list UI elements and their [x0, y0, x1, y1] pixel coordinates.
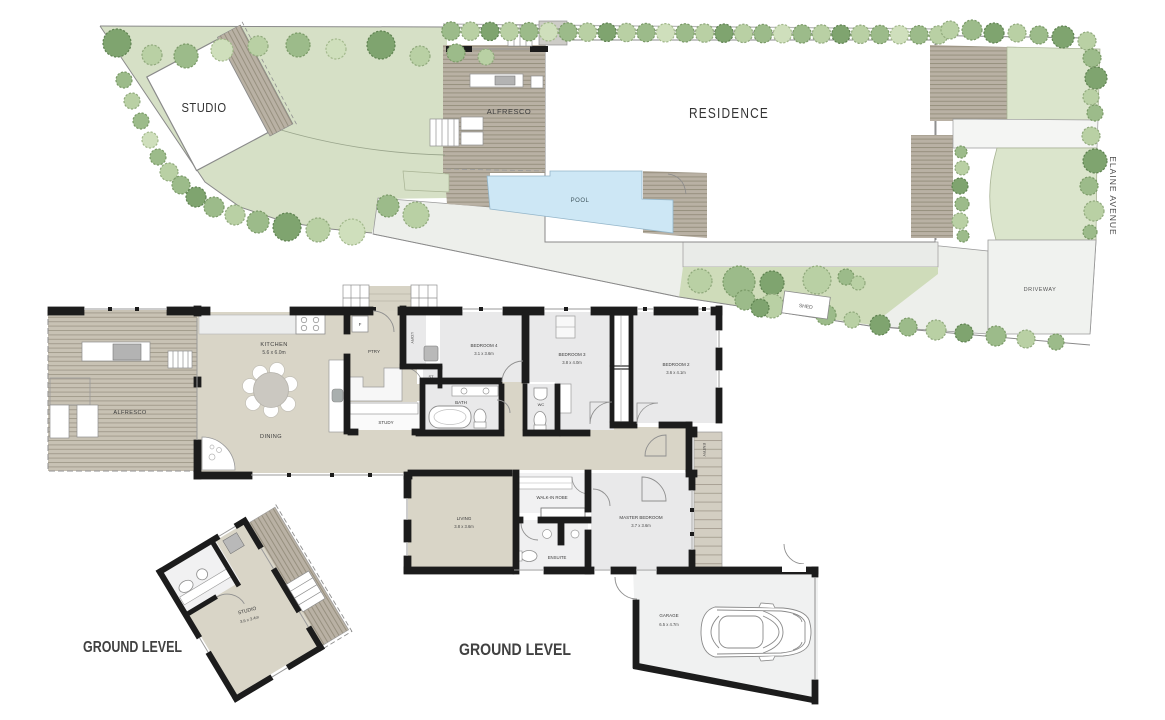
svg-text:GROUND LEVEL: GROUND LEVEL [83, 639, 182, 656]
svg-text:3.1 x 3.6m: 3.1 x 3.6m [474, 351, 494, 356]
svg-text:WC: WC [538, 402, 545, 407]
svg-text:ELAINE AVENUE: ELAINE AVENUE [1108, 156, 1118, 235]
svg-text:LIVING: LIVING [457, 516, 472, 521]
svg-text:BEDROOM 4: BEDROOM 4 [470, 343, 498, 348]
svg-text:6.5 x 4.7m: 6.5 x 4.7m [659, 622, 679, 627]
svg-text:5.6 x 6.0m: 5.6 x 6.0m [262, 350, 285, 356]
svg-text:BATH: BATH [455, 400, 467, 405]
svg-text:ENTRY: ENTRY [702, 443, 707, 457]
svg-text:GROUND LEVEL: GROUND LEVEL [459, 640, 571, 659]
svg-text:STUDY: STUDY [378, 420, 393, 425]
svg-text:3.7 x 3.6m: 3.7 x 3.6m [631, 523, 651, 528]
svg-text:DRIVEWAY: DRIVEWAY [1024, 287, 1057, 293]
svg-text:ENSUITE: ENSUITE [548, 555, 567, 560]
svg-text:3.8 x 3.6m: 3.8 x 3.6m [454, 524, 474, 529]
svg-text:POOL: POOL [571, 198, 590, 204]
svg-text:MASTER BEDROOM: MASTER BEDROOM [619, 515, 663, 520]
svg-text:L'DRY: L'DRY [410, 332, 415, 344]
svg-text:STUDIO: STUDIO [182, 101, 227, 115]
svg-text:DINING: DINING [260, 434, 282, 440]
svg-text:KITCHEN: KITCHEN [260, 342, 287, 348]
svg-text:ALFRESCO: ALFRESCO [113, 410, 147, 416]
svg-text:BEDROOM 2: BEDROOM 2 [662, 362, 690, 367]
svg-text:3.8 x 4.0m: 3.8 x 4.0m [562, 360, 582, 365]
svg-text:RESIDENCE: RESIDENCE [689, 105, 769, 122]
svg-text:GARAGE: GARAGE [659, 613, 678, 618]
svg-text:ALFRESCO: ALFRESCO [487, 107, 531, 116]
svg-text:F: F [359, 322, 362, 327]
svg-text:WALK-IN ROBE: WALK-IN ROBE [536, 495, 567, 500]
svg-text:BEDROOM 3: BEDROOM 3 [558, 352, 586, 357]
svg-text:3.6 x 4.1m: 3.6 x 4.1m [666, 370, 686, 375]
svg-text:PTRY: PTRY [368, 349, 380, 354]
